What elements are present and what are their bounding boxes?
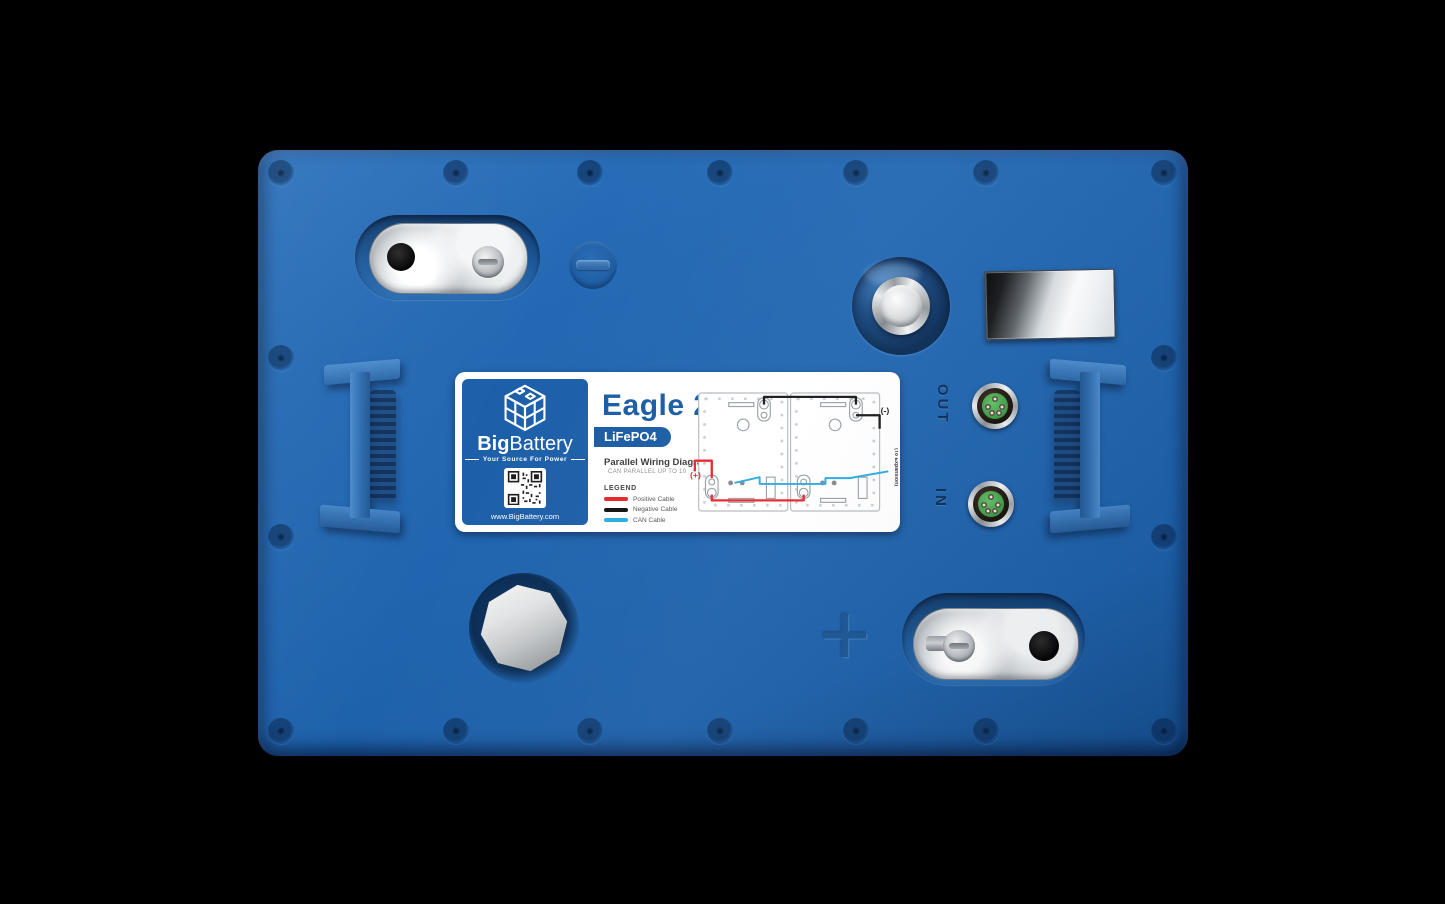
brand-website: www.BigBattery.com [491, 512, 559, 521]
legend-title: LEGEND [604, 485, 677, 492]
chrome-nameplate [984, 269, 1115, 341]
legend-item: CAN Cable [604, 517, 677, 524]
terminal-cap-minus [569, 241, 617, 289]
connector-pin [989, 410, 995, 416]
handle-grip-slot [1054, 390, 1080, 502]
recessed-rivet [843, 718, 869, 744]
brand-name-bold: Big [477, 433, 509, 455]
mounting-recess-top-left [355, 215, 540, 300]
plate-bolt [943, 630, 975, 662]
plate-bolt [472, 246, 504, 278]
brand-logo-cube-icon [496, 384, 554, 432]
mounting-plate-bottom-right [913, 608, 1079, 680]
power-button-bezel [852, 257, 950, 355]
brand-panel: BigBattery Your Source For Power [462, 379, 588, 525]
legend-item: Positive Cable [604, 496, 677, 503]
plate-hole [387, 243, 415, 271]
brand-name-regular: Battery [509, 433, 572, 455]
connector-pin [999, 404, 1005, 410]
battery-product-photo: OUT IN [0, 0, 1445, 904]
wiring-diagram-subtitle: CAN PARALLEL UP TO 10 [608, 469, 686, 475]
brand-tagline: Your Source For Power [465, 456, 585, 463]
minus-slot [576, 260, 610, 270]
handle-web [350, 372, 370, 518]
recessed-rivet [268, 160, 294, 186]
recessed-rivet [577, 160, 603, 186]
legend-swatch-negative [604, 508, 628, 512]
recessed-rivet [577, 718, 603, 744]
recessed-rivet [973, 160, 999, 186]
connector-pin [985, 404, 991, 410]
positive-symbol: + [810, 600, 880, 672]
port-label-out: OUT [934, 384, 951, 425]
recessed-rivet [443, 160, 469, 186]
tagline-text: Your Source For Power [483, 456, 567, 463]
recessed-rivet [1151, 524, 1177, 550]
legend-label: CAN Cable [633, 517, 666, 524]
connector-pin [992, 396, 998, 402]
mounting-plate-top-left [369, 223, 528, 294]
carry-handle-left [320, 360, 404, 530]
plate-hole [1029, 631, 1059, 661]
connector-pin [995, 502, 1001, 508]
label-content: Eagle 2 LiFePO4 Parallel Wiring Diagram … [598, 379, 893, 525]
port-label-in: IN [932, 488, 949, 509]
wiring-diagram-figure: (-) (+) (To Expansion) [690, 385, 898, 519]
handle-web [1080, 372, 1100, 518]
recessed-rivet [443, 718, 469, 744]
battery-case-top: OUT IN [258, 150, 1188, 756]
legend: LEGEND Positive Cable Negative Cable CAN… [604, 485, 677, 524]
recessed-rivet [973, 718, 999, 744]
tagline-rule [465, 459, 479, 460]
connector-pin [992, 508, 998, 514]
expansion-annotation: (To Expansion) [893, 448, 898, 486]
recessed-rivet [707, 160, 733, 186]
recessed-rivet [707, 718, 733, 744]
mounting-recess-bottom-right [902, 593, 1085, 685]
recessed-rivet [1151, 160, 1177, 186]
brand-name: BigBattery [477, 434, 573, 454]
recessed-rivet [268, 718, 294, 744]
qr-code [504, 468, 546, 508]
tagline-rule [571, 459, 585, 460]
connector-pin [988, 494, 994, 500]
legend-item: Negative Cable [604, 506, 677, 513]
handle-grip-slot [370, 390, 396, 502]
recessed-rivet [1151, 718, 1177, 744]
power-button-ring [872, 277, 930, 335]
connector-pin [996, 410, 1002, 416]
chemistry-badge: LiFePO4 [594, 427, 671, 447]
legend-label: Negative Cable [633, 506, 677, 513]
recessed-rivet [268, 524, 294, 550]
connector-pin [981, 502, 987, 508]
legend-label: Positive Cable [633, 496, 675, 503]
can-port-out [972, 383, 1018, 429]
recessed-rivet [268, 345, 294, 371]
connector-face [978, 491, 1004, 517]
can-port-in [968, 481, 1014, 527]
legend-swatch-can [604, 518, 628, 522]
product-label: BigBattery Your Source For Power [455, 372, 900, 532]
carry-handle-right [1046, 360, 1130, 530]
recessed-rivet [1151, 345, 1177, 371]
recessed-rivet [843, 160, 869, 186]
power-button [880, 285, 922, 327]
connector-pin [985, 508, 991, 514]
positive-annotation: (+) [690, 470, 701, 480]
connector-face [982, 393, 1008, 419]
legend-swatch-positive [604, 497, 628, 501]
negative-annotation: (-) [881, 405, 890, 415]
